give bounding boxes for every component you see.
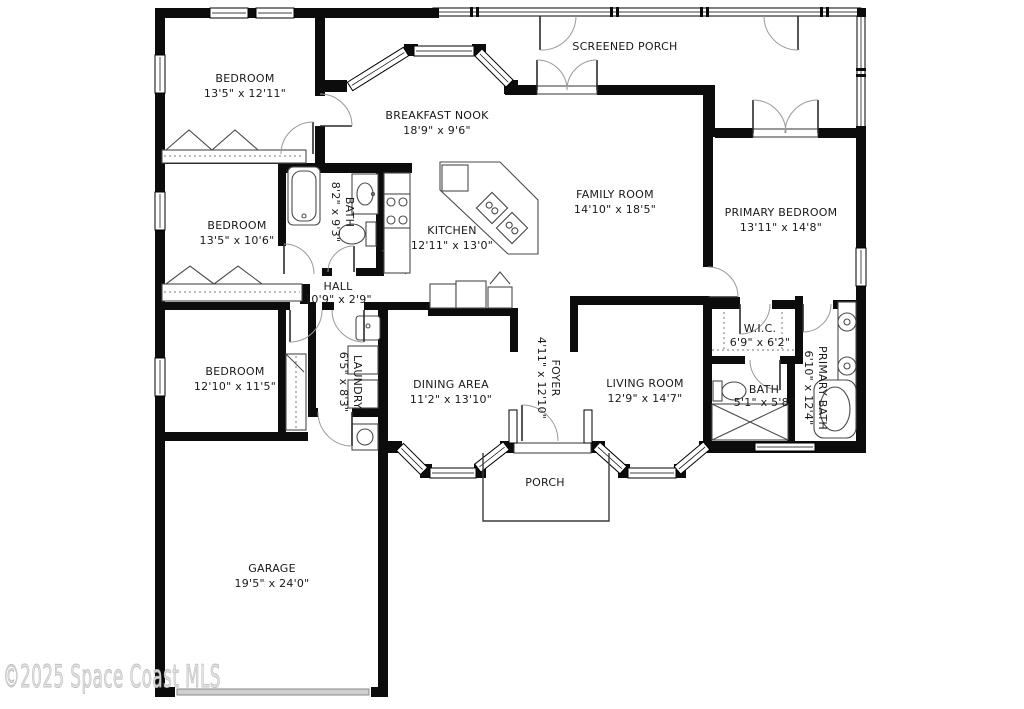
living-bay-window-right	[674, 442, 710, 474]
closet-bedroom-lower	[286, 354, 306, 430]
svg-text:6'10" x 12'4": 6'10" x 12'4"	[802, 351, 815, 426]
living-bay-window-front	[628, 468, 676, 478]
screen-door-right	[764, 16, 798, 50]
room-label-primary-bath: PRIMARY BATH 6'10" x 12'4"	[802, 346, 829, 430]
svg-text:4'11" x 12'10": 4'11" x 12'10"	[535, 337, 548, 419]
svg-text:FAMILY ROOM: FAMILY ROOM	[576, 188, 654, 201]
nook-bay-window-top	[414, 46, 474, 56]
door-primary-bath	[803, 304, 831, 332]
svg-text:19'5" x 24'0": 19'5" x 24'0"	[235, 577, 310, 590]
water-heater-icon	[352, 424, 378, 450]
french-door-primary-bedroom	[753, 100, 818, 137]
svg-text:18'9" x 9'6": 18'9" x 9'6"	[403, 124, 471, 137]
svg-text:6'9" x 6'2": 6'9" x 6'2"	[730, 336, 790, 349]
bedroom-top-left-window	[155, 55, 165, 93]
room-label-bedroom-middle: BEDROOM 13'5" x 10'6"	[200, 219, 275, 247]
closet-bedroom-top	[162, 130, 306, 163]
svg-text:HALL: HALL	[323, 280, 353, 293]
svg-text:13'5" x 10'6": 13'5" x 10'6"	[200, 234, 275, 247]
bedroom-lower-window	[155, 358, 165, 396]
room-label-wic: W.I.C. 6'9" x 6'2"	[730, 322, 790, 349]
walls	[155, 8, 866, 697]
laundry-sink-icon	[356, 316, 380, 340]
svg-text:12'9" x 14'7": 12'9" x 14'7"	[608, 392, 683, 405]
room-label-screened-porch: SCREENED PORCH	[572, 40, 677, 53]
shower-icon	[712, 404, 788, 440]
watermark-text: ©2025 Space Coast MLS	[3, 659, 221, 695]
door-bedroom-lower	[290, 310, 322, 342]
room-label-bedroom-top: BEDROOM 13'5" x 12'11"	[204, 72, 286, 100]
door-bedroom-middle	[284, 244, 314, 274]
svg-text:LIVING ROOM: LIVING ROOM	[606, 377, 684, 390]
primary-bath-window	[755, 443, 815, 451]
svg-text:BREAKFAST NOOK: BREAKFAST NOOK	[385, 109, 489, 122]
room-label-living-room: LIVING ROOM 12'9" x 14'7"	[606, 377, 684, 405]
svg-text:14'10" x 18'5": 14'10" x 18'5"	[574, 203, 656, 216]
windows	[155, 8, 866, 697]
svg-text:8'2" x 9'3": 8'2" x 9'3"	[329, 182, 342, 242]
door-garage-service	[318, 412, 352, 446]
room-label-hall: HALL 10'9" x 2'9"	[304, 280, 372, 306]
door-nook-porch	[320, 94, 352, 126]
bedroom-top-window-2	[256, 8, 294, 18]
svg-text:BATH: BATH	[343, 197, 356, 227]
svg-text:FOYER: FOYER	[549, 360, 562, 397]
bathtub-icon	[288, 167, 320, 225]
door-primary-bedroom	[708, 267, 738, 297]
svg-text:BEDROOM: BEDROOM	[215, 72, 274, 85]
door-bedroom-top	[281, 122, 313, 154]
bedroom-middle-window	[155, 192, 165, 230]
floor-plan-page: SCREENED PORCH BEDROOM 13'5" x 12'11" BR…	[0, 0, 1024, 709]
svg-text:12'10" x 11'5": 12'10" x 11'5"	[194, 380, 276, 393]
svg-text:13'5" x 12'11": 13'5" x 12'11"	[204, 87, 286, 100]
svg-text:W.I.C.: W.I.C.	[744, 322, 777, 335]
svg-text:PRIMARY BEDROOM: PRIMARY BEDROOM	[725, 206, 838, 219]
room-label-garage: GARAGE 19'5" x 24'0"	[235, 562, 310, 590]
svg-text:PORCH: PORCH	[525, 476, 565, 489]
svg-text:DINING AREA: DINING AREA	[413, 378, 489, 391]
french-door-family-room	[537, 60, 597, 94]
svg-text:BEDROOM: BEDROOM	[207, 219, 266, 232]
room-label-family-room: FAMILY ROOM 14'10" x 18'5"	[574, 188, 656, 216]
svg-text:BATH: BATH	[749, 383, 779, 396]
svg-text:11'2" x 13'10": 11'2" x 13'10"	[410, 393, 492, 406]
room-label-foyer: FOYER 4'11" x 12'10"	[535, 337, 562, 419]
nook-bay-window-left	[347, 47, 408, 90]
refrigerator-icon	[430, 272, 512, 308]
svg-text:PRIMARY BATH: PRIMARY BATH	[816, 346, 829, 430]
primary-bedroom-window	[856, 248, 866, 286]
svg-text:12'11" x 13'0": 12'11" x 13'0"	[411, 239, 493, 252]
front-door	[509, 405, 592, 453]
room-label-breakfast-nook: BREAKFAST NOOK 18'9" x 9'6"	[385, 109, 489, 137]
living-bay-window-left	[593, 442, 626, 474]
svg-text:BEDROOM: BEDROOM	[205, 365, 264, 378]
room-label-laundry: LAUNDRY 6'5" x 8'3"	[337, 352, 364, 412]
floor-plan-drawing: SCREENED PORCH BEDROOM 13'5" x 12'11" BR…	[0, 0, 1024, 709]
dining-bay-window-right	[475, 442, 510, 472]
room-label-primary-bedroom: PRIMARY BEDROOM 13'11" x 14'8"	[725, 206, 838, 234]
svg-text:10'9" x 2'9": 10'9" x 2'9"	[304, 293, 372, 306]
svg-text:5'1" x 5'8": 5'1" x 5'8"	[734, 396, 794, 409]
room-label-bedroom-lower: BEDROOM 12'10" x 11'5"	[194, 365, 276, 393]
screen-door-left	[540, 16, 576, 50]
kitchen-counter-range	[384, 173, 410, 273]
svg-text:6'5" x 8'3": 6'5" x 8'3"	[337, 352, 350, 412]
svg-text:GARAGE: GARAGE	[248, 562, 296, 575]
room-label-porch: PORCH	[525, 476, 565, 489]
dining-bay-window-left	[396, 443, 427, 474]
svg-text:KITCHEN: KITCHEN	[427, 224, 476, 237]
svg-text:SCREENED PORCH: SCREENED PORCH	[572, 40, 677, 53]
dining-bay-window-front	[430, 468, 476, 478]
svg-text:LAUNDRY: LAUNDRY	[351, 355, 364, 409]
svg-text:13'11" x 14'8": 13'11" x 14'8"	[740, 221, 822, 234]
closet-bedroom-middle	[162, 266, 302, 301]
double-vanity-icon	[838, 302, 856, 386]
nook-bay-window-right	[475, 49, 513, 87]
bedroom-top-window-1	[210, 8, 248, 18]
room-label-dining-area: DINING AREA 11'2" x 13'10"	[410, 378, 492, 406]
